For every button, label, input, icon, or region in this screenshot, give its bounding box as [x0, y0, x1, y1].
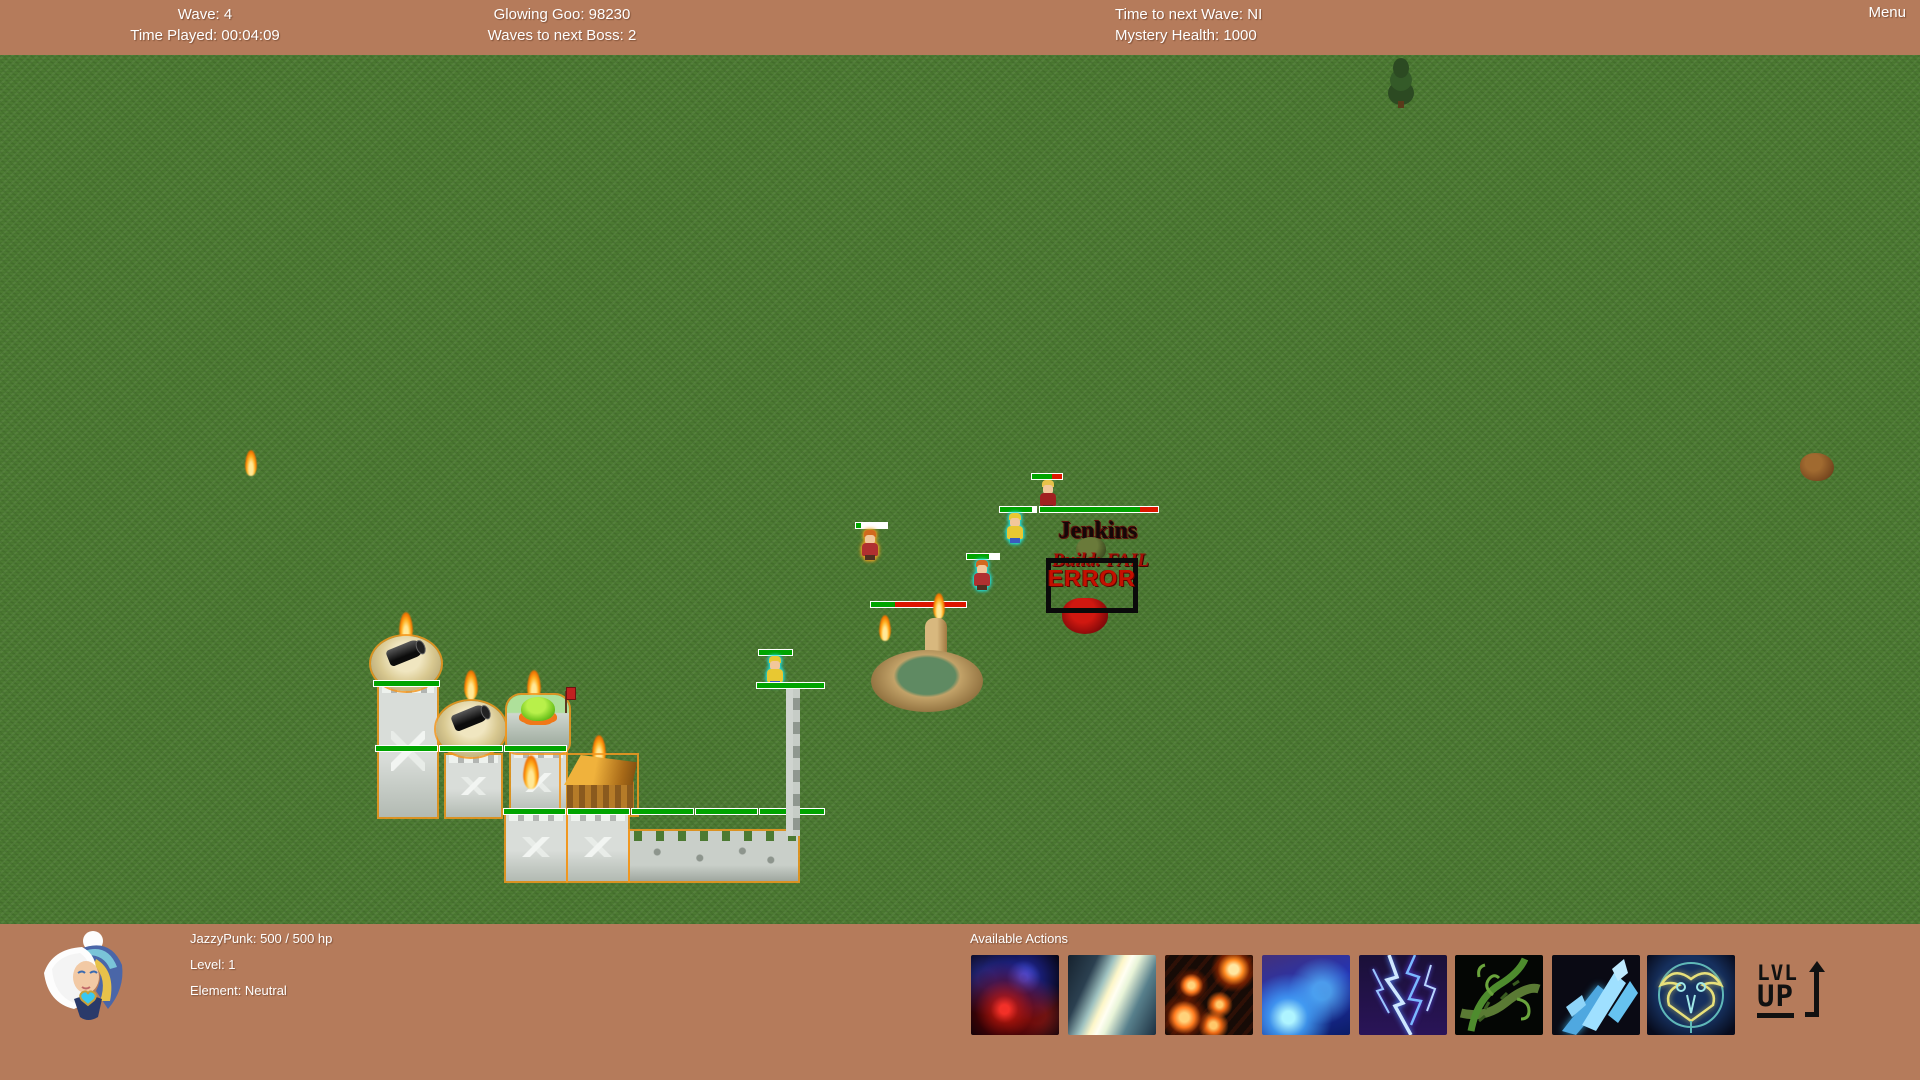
rock-sprite	[1800, 453, 1834, 481]
unit-health-bar	[758, 649, 793, 656]
action-meteor-shower-icon[interactable]	[1165, 955, 1253, 1035]
tower-health-bar	[439, 745, 503, 752]
action-light-beam-icon[interactable]	[1068, 955, 1156, 1035]
waves-to-boss-counter: Waves to next Boss: 2	[478, 25, 646, 46]
flame-sprite	[464, 670, 478, 700]
error-label: ERROR	[1048, 565, 1136, 608]
tower-base[interactable]	[568, 813, 628, 881]
tower-base[interactable]	[511, 750, 566, 815]
tower-base[interactable]	[506, 813, 566, 881]
action-lightning-icon[interactable]	[1359, 955, 1447, 1035]
enemy-health-bar	[1031, 473, 1063, 480]
stone-wall[interactable]	[630, 831, 798, 881]
level-up-button[interactable]: LVL UP	[1757, 963, 1831, 1027]
tower-health-bar	[375, 745, 438, 752]
enemy-villager[interactable]	[858, 530, 882, 560]
enemy-health-bar	[966, 553, 1000, 560]
tower-health-bar	[373, 680, 440, 687]
flame-sprite	[523, 755, 539, 789]
time-to-next-wave: Time to next Wave: NI	[1115, 4, 1375, 25]
time-played: Time Played: 00:04:09	[130, 25, 280, 46]
fountain-tower[interactable]	[871, 650, 983, 712]
menu-button[interactable]: Menu	[1868, 4, 1906, 21]
wave-stats: Wave: 4 Time Played: 00:04:09	[130, 4, 280, 46]
mystery-health: Mystery Health: 1000	[1115, 25, 1375, 46]
fountain-health-bar	[870, 601, 967, 608]
tower-health-bar	[567, 808, 630, 815]
game-screen: Wave: 4 Time Played: 00:04:09 Glowing Go…	[0, 0, 1920, 1080]
tower-health-bar	[631, 808, 694, 815]
flame-sprite	[933, 593, 945, 619]
resource-stats: Glowing Goo: 98230 Waves to next Boss: 2	[478, 4, 646, 46]
hero-hp-label: JazzyPunk: 500 / 500 hp	[190, 931, 332, 946]
action-owl-sigil-icon[interactable]	[1647, 955, 1735, 1035]
enemy-villager[interactable]	[1003, 513, 1027, 543]
tower-health-bar	[503, 808, 566, 815]
action-thorn-vines-icon[interactable]	[1455, 955, 1543, 1035]
wave-timer-stats: Time to next Wave: NI Mystery Health: 10…	[1115, 4, 1375, 46]
action-red-blue-burst-icon[interactable]	[971, 955, 1059, 1035]
tower-health-bar	[695, 808, 758, 815]
flame-sprite	[245, 450, 257, 476]
flag-icon	[565, 691, 567, 713]
glowing-goo-counter: Glowing Goo: 98230	[478, 4, 646, 25]
wave-counter: Wave: 4	[130, 4, 280, 25]
bug-creature-icon	[521, 697, 555, 721]
bottom-hud-bar: JazzyPunk: 500 / 500 hp Level: 1 Element…	[0, 924, 1920, 1080]
enemy-villager[interactable]	[970, 560, 994, 590]
tree-sprite	[1381, 53, 1421, 109]
cannon-icon	[450, 703, 490, 732]
enemy-health-bar	[999, 506, 1037, 513]
wooden-hut[interactable]	[561, 755, 637, 815]
hero-element-label: Element: Neutral	[190, 983, 287, 998]
watch-column[interactable]	[786, 686, 800, 836]
cannon-icon	[385, 638, 425, 667]
level-up-label-up: UP	[1757, 979, 1794, 1018]
game-field[interactable]: Jenkins Build: FAIL ERROR	[0, 55, 1920, 924]
action-ice-shards-icon[interactable]	[1552, 955, 1640, 1035]
unit-health-bar	[756, 682, 825, 689]
hero-portrait[interactable]	[38, 928, 138, 1030]
boss-health-bar	[1039, 506, 1159, 513]
hero-level-label: Level: 1	[190, 957, 236, 972]
tower-health-bar	[504, 745, 567, 752]
top-hud-bar: Wave: 4 Time Played: 00:04:09 Glowing Go…	[0, 0, 1920, 55]
available-actions-label: Available Actions	[970, 931, 1068, 946]
error-box: ERROR	[1046, 558, 1138, 613]
flame-sprite	[879, 615, 891, 641]
tower-base[interactable]	[446, 755, 501, 817]
enemy-health-bar	[855, 522, 888, 529]
action-blue-flame-icon[interactable]	[1262, 955, 1350, 1035]
